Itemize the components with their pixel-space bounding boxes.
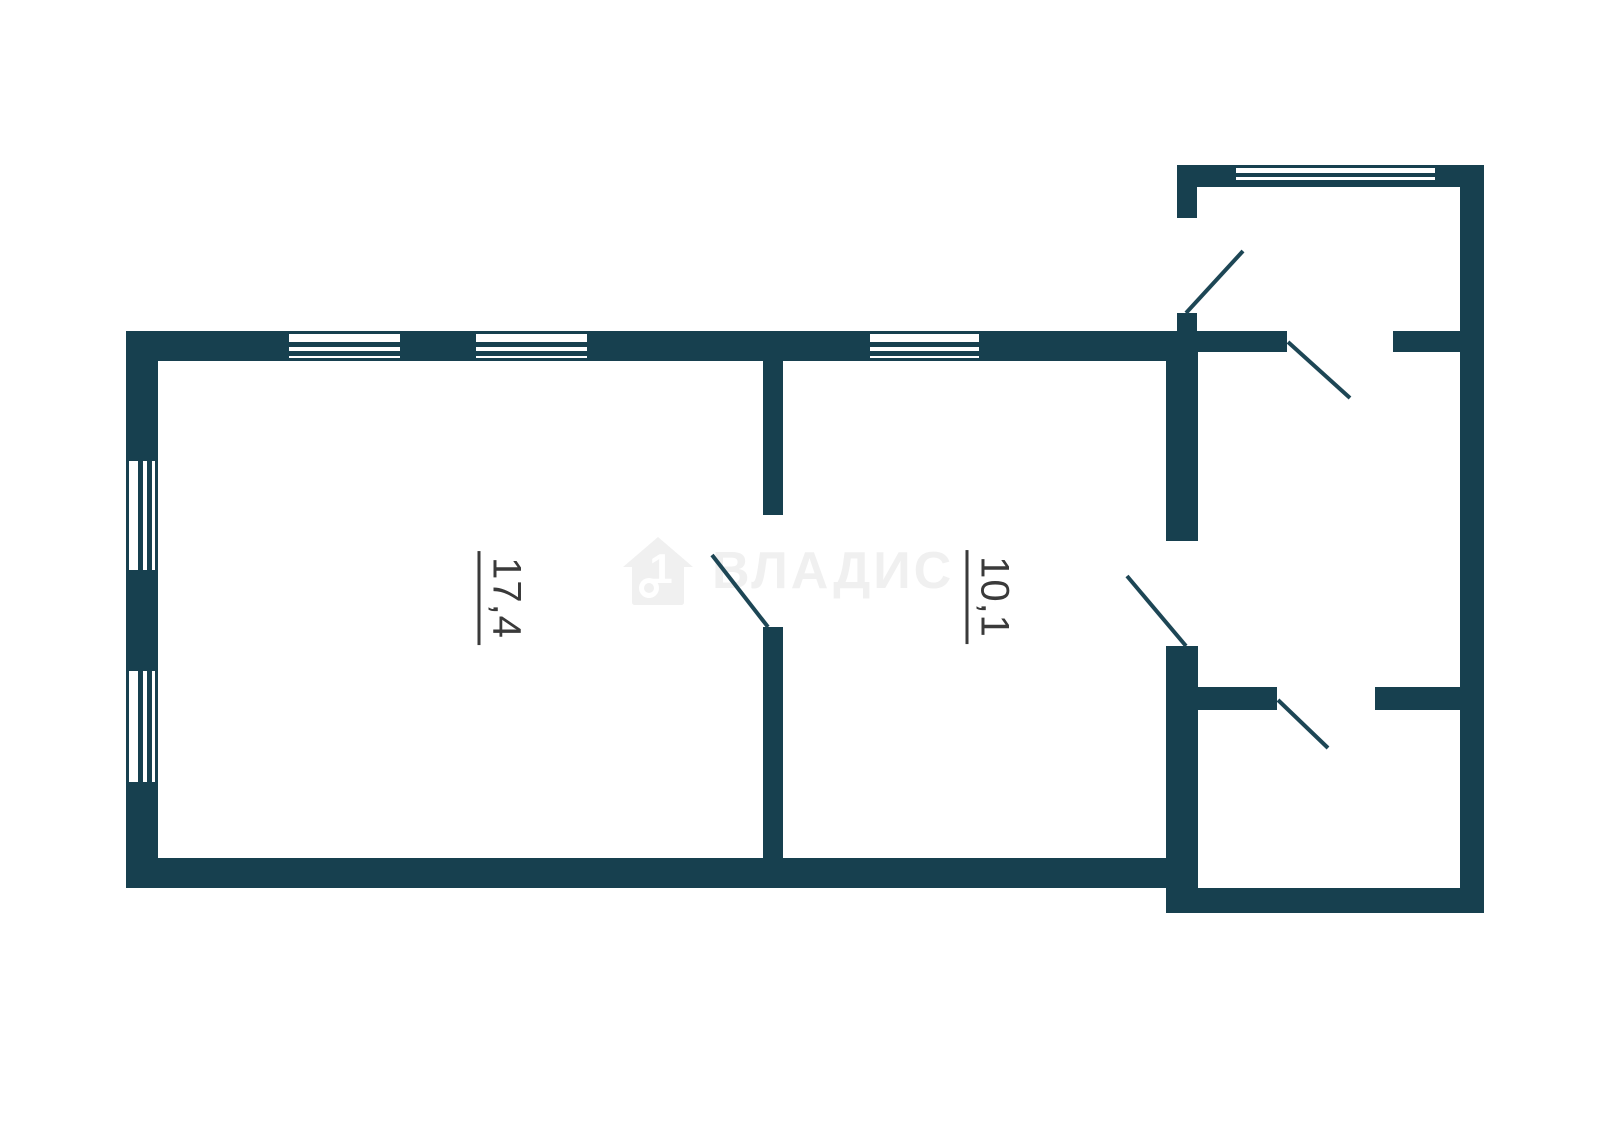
window-left-2 (126, 668, 158, 785)
wall-room-divider-lower (763, 627, 783, 858)
wall-entrance-left-upper (1177, 187, 1197, 218)
window-mullion (289, 351, 400, 356)
window-top-3 (867, 331, 982, 361)
room-2-area-label: 10,1 (966, 550, 1017, 644)
door-swing-bath (1278, 700, 1328, 748)
window-mullion (870, 342, 979, 347)
window-mullion (476, 351, 587, 356)
wall-bottom-main (126, 858, 1170, 888)
wall-entrance-bottom (1170, 888, 1484, 913)
window-mullion (289, 342, 400, 347)
vladis-house-logo-icon: 1 (622, 536, 694, 606)
window-mullion (138, 671, 143, 782)
room-1-area-label: 17,4 (478, 551, 529, 645)
door-swing-room2-hall (1127, 576, 1186, 646)
wall-room-divider-upper (763, 361, 783, 515)
window-mullion (476, 342, 587, 347)
window-entrance-top (1233, 165, 1438, 187)
watermark: 1 ВЛАДИС (622, 536, 954, 606)
window-left-1 (126, 458, 158, 573)
window-mullion (1236, 173, 1435, 177)
wall-hall-divider-lower (1166, 646, 1198, 913)
window-top-2 (473, 331, 590, 361)
wall-hall-divider-upper (1166, 331, 1198, 541)
window-mullion (1236, 180, 1435, 184)
window-mullion (147, 671, 152, 782)
floor-plan: 1 ВЛАДИС (0, 0, 1600, 1147)
door-swing-hall-top (1288, 342, 1350, 398)
wall-top-main (126, 331, 1166, 361)
wall-partition-top-b (1393, 331, 1460, 352)
wall-right-exterior (1460, 165, 1484, 913)
wall-entrance-left-stub (1177, 313, 1197, 331)
wall-partition-top-a (1197, 331, 1287, 352)
watermark-brand-text: ВЛАДИС (712, 545, 954, 597)
window-top-1 (286, 331, 403, 361)
window-mullion (138, 461, 143, 570)
door-swing-entry (1186, 251, 1243, 313)
wall-bath-divider-a (1197, 687, 1277, 710)
window-mullion (147, 461, 152, 570)
window-mullion (870, 351, 979, 356)
wall-bath-divider-b (1375, 687, 1460, 710)
wall-left-exterior (126, 331, 158, 888)
